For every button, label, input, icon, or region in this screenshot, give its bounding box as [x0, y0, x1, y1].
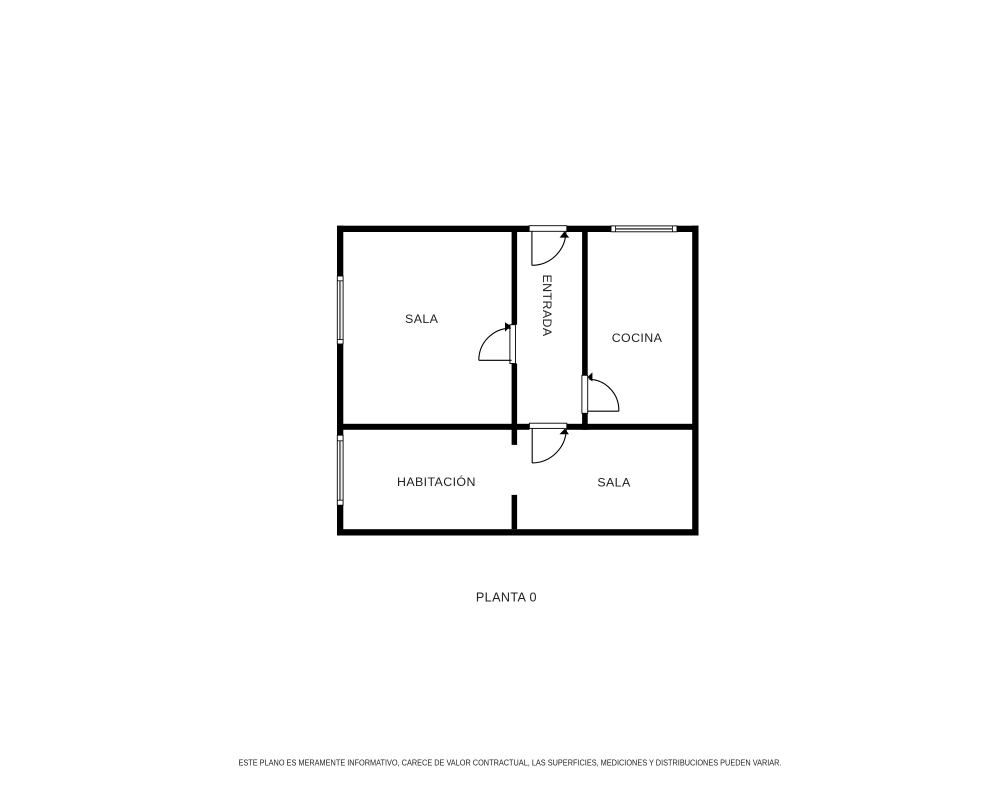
svg-text:ENTRADA: ENTRADA — [540, 274, 554, 336]
svg-text:HABITACIÓN: HABITACIÓN — [397, 474, 476, 489]
svg-text:SALA: SALA — [597, 476, 631, 490]
svg-text:SALA: SALA — [405, 312, 439, 326]
svg-text:ESTE PLANO ES MERAMENTE INFORM: ESTE PLANO ES MERAMENTE INFORMATIVO, CAR… — [239, 757, 782, 767]
svg-text:PLANTA 0: PLANTA 0 — [476, 591, 537, 605]
svg-text:COCINA: COCINA — [612, 331, 663, 345]
